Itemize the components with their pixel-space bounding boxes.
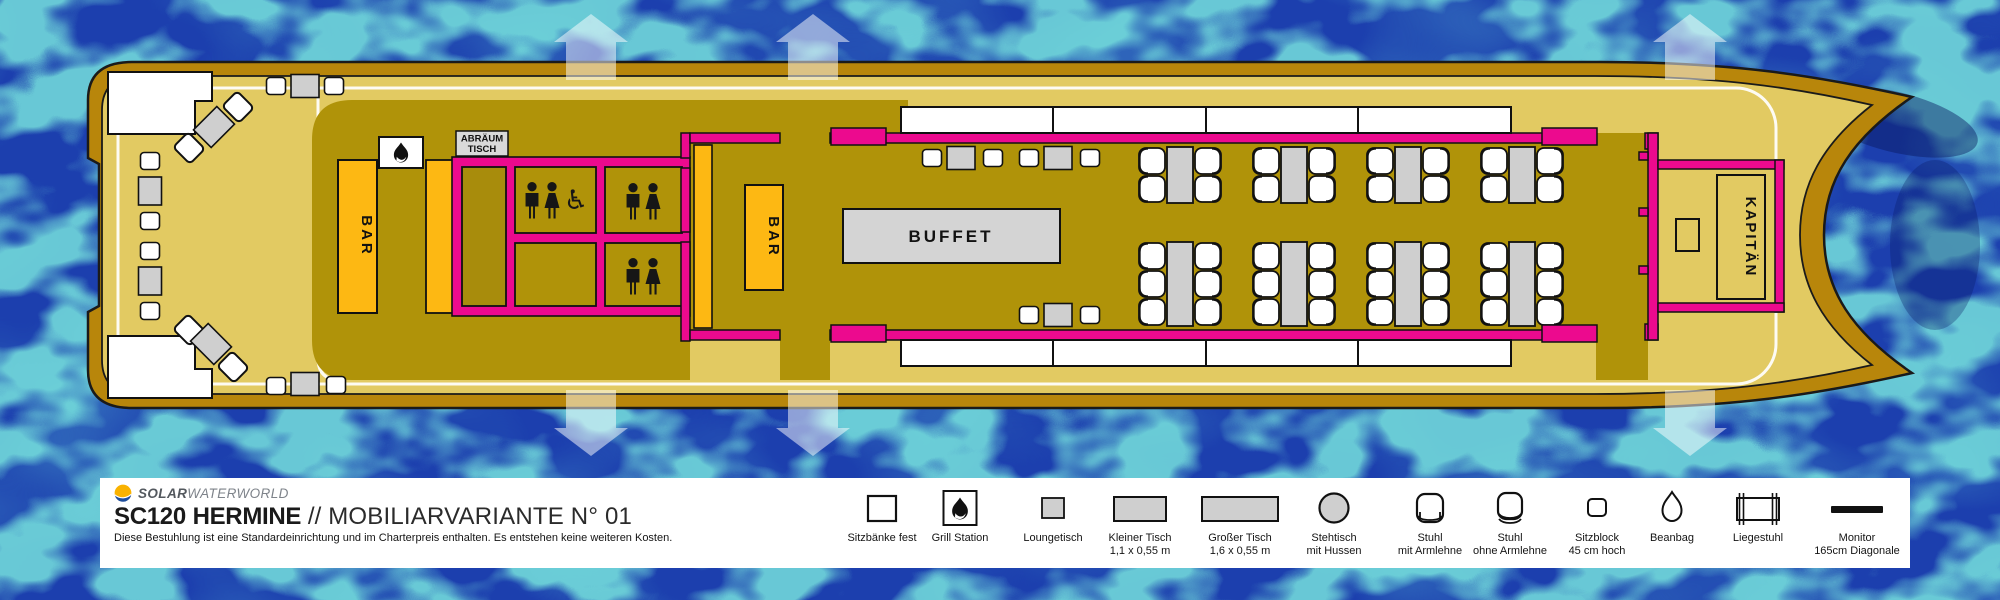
info-bar: SOLARWATERWORLD SC120 HERMINE // MOBILIA… (100, 478, 1910, 568)
chair-icon (1195, 299, 1221, 325)
legend-item-grill: Grill Station (912, 486, 1008, 545)
stern-seat-row-top (267, 75, 344, 98)
bench (1358, 107, 1511, 133)
bench (901, 340, 1053, 366)
title-subtitle: Diese Bestuhlung ist eine Standardeinric… (114, 532, 814, 544)
bar-salon-label: BAR (765, 216, 782, 258)
grill-station (379, 137, 423, 168)
bench (1053, 107, 1206, 133)
grill-icon (938, 487, 982, 531)
title-block: SOLARWATERWORLD SC120 HERMINE // MOBILIA… (114, 484, 814, 544)
title-model: SC120 (114, 503, 186, 530)
chair-icon (1537, 176, 1563, 202)
seat-block (984, 150, 1003, 167)
chair-icon (1195, 243, 1221, 269)
table-group-large (1367, 242, 1449, 326)
seat-block (923, 150, 942, 167)
lounge-table-icon (1031, 487, 1075, 531)
chair-icon (1481, 271, 1507, 297)
title-name: HERMINE (193, 503, 302, 530)
sliding-door (831, 128, 886, 145)
chair-icon (1367, 176, 1393, 202)
wc-block: ♿ (452, 157, 690, 316)
monitor-icon (1825, 487, 1889, 531)
lounge-table (139, 177, 162, 205)
legend-item-liegestuhl: Liegestuhl (1710, 486, 1806, 545)
chair-icon (1367, 299, 1393, 325)
sliding-door (1542, 128, 1597, 145)
chair-icon (1253, 176, 1279, 202)
legend-item-stuhl-ohne-armlehne: Stuhlohne Armlehne (1462, 486, 1558, 558)
seat-block (141, 243, 160, 260)
chair-icon (1139, 299, 1165, 325)
chair-icon (1309, 148, 1335, 174)
brand-name: SOLARWATERWORLD (138, 486, 289, 501)
chair-icon (1423, 271, 1449, 297)
deck-plan-scene: BAR ABRÄUM TISCH ♿ BAR (0, 0, 2000, 600)
chair-icon (1367, 243, 1393, 269)
legend-item-kleiner-tisch: Kleiner Tisch1,1 x 0,55 m (1092, 486, 1188, 558)
seat-block (1020, 150, 1039, 167)
lounge-table (139, 267, 162, 295)
solarwaterworld-logo-icon (114, 484, 132, 502)
chair-icon (1537, 299, 1563, 325)
chair-no-armrest-icon (1488, 487, 1532, 531)
title-separator: // (308, 503, 322, 530)
sliding-door (1542, 325, 1597, 342)
seat-block (141, 213, 160, 230)
captain-label: KAPITÄN (1742, 197, 1759, 278)
bench (1358, 340, 1511, 366)
seat-block (325, 78, 344, 95)
chair-icon (1309, 271, 1335, 297)
chair-icon (1195, 148, 1221, 174)
clearing-table-room (462, 167, 506, 306)
seat-block (1081, 150, 1100, 167)
chair-icon (1537, 271, 1563, 297)
bench (1053, 340, 1206, 366)
chair-icon (1309, 243, 1335, 269)
chair-icon (1253, 243, 1279, 269)
seat-block (141, 153, 160, 170)
seat-block (327, 377, 346, 394)
chair-icon (1481, 299, 1507, 325)
chair-icon (1195, 271, 1221, 297)
legend-item-grosser-tisch: Großer Tisch1,6 x 0,55 m (1192, 486, 1288, 558)
bench (1206, 107, 1358, 133)
chair-icon (1423, 299, 1449, 325)
seat-block (141, 303, 160, 320)
chair-icon (1367, 271, 1393, 297)
page-title: SC120 HERMINE // MOBILIARVARIANTE N° 01 (114, 504, 814, 530)
svg-text:TISCH: TISCH (468, 144, 497, 155)
salon-seatblock-row-bottom (1020, 304, 1100, 327)
chair-icon (1139, 243, 1165, 269)
wheelchair-icon: ♿ (564, 185, 588, 216)
bench (1206, 340, 1358, 366)
title-variant: MOBILIARVARIANTE N° 01 (328, 503, 632, 530)
chair-icon (1481, 176, 1507, 202)
seat-block-icon (1575, 487, 1619, 531)
clearing-table-label: ABRÄUM TISCH (456, 131, 508, 156)
chair-icon (1423, 148, 1449, 174)
small-table-icon (1111, 487, 1169, 531)
table-group-large (1481, 242, 1563, 326)
chair-icon (1423, 176, 1449, 202)
chair-icon (1309, 299, 1335, 325)
beanbag-icon (1650, 487, 1694, 531)
seat-block (1081, 307, 1100, 324)
seat-block (1020, 307, 1039, 324)
legend-item-monitor: Monitor165cm Diagonale (1809, 486, 1905, 558)
legend-item-stehtisch: Stehtischmit Hussen (1286, 486, 1382, 558)
chair-icon (1139, 176, 1165, 202)
lounge-table (1044, 147, 1072, 170)
storage-room (515, 243, 596, 306)
svg-text:ABRÄUM: ABRÄUM (461, 134, 503, 145)
bar-left: BAR (338, 160, 377, 313)
legend-item-loungetisch: Loungetisch (1005, 486, 1101, 545)
counter-strip (426, 160, 454, 313)
chair-icon (1309, 176, 1335, 202)
standing-table-icon (1312, 487, 1356, 531)
chair-icon (1537, 148, 1563, 174)
table-group-large (1253, 242, 1335, 326)
buffet-table: BUFFET (843, 209, 1060, 263)
lounge-table (291, 373, 319, 396)
chair-armrest-icon (1408, 487, 1452, 531)
chair-icon (1139, 271, 1165, 297)
seat-block (267, 78, 286, 95)
buffet-label: BUFFET (908, 227, 993, 246)
chair-icon (1253, 299, 1279, 325)
wc-room-bottom (605, 243, 682, 306)
table-group-large (1139, 242, 1221, 326)
lounge-table (291, 75, 319, 98)
legend-item-beanbag: Beanbag (1624, 486, 1720, 545)
bar-salon: BAR (745, 185, 783, 290)
chair-icon (1481, 243, 1507, 269)
wc-room-top (605, 167, 682, 233)
seat-block (267, 378, 286, 395)
chair-icon (1195, 176, 1221, 202)
sliding-door (831, 325, 886, 342)
chair-icon (1139, 148, 1165, 174)
chair-icon (1481, 148, 1507, 174)
bench-icon (860, 487, 904, 531)
chair-icon (1537, 243, 1563, 269)
large-table-icon (1199, 487, 1281, 531)
salon-counter-strip (694, 145, 712, 328)
chair-icon (1253, 271, 1279, 297)
chair-icon (1367, 148, 1393, 174)
lounge-table (1044, 304, 1072, 327)
chair-icon (1253, 148, 1279, 174)
deckchair-icon (1729, 487, 1787, 531)
bar-left-label: BAR (358, 215, 375, 257)
lounge-table (947, 147, 975, 170)
bench (901, 107, 1053, 133)
chair-icon (1423, 243, 1449, 269)
